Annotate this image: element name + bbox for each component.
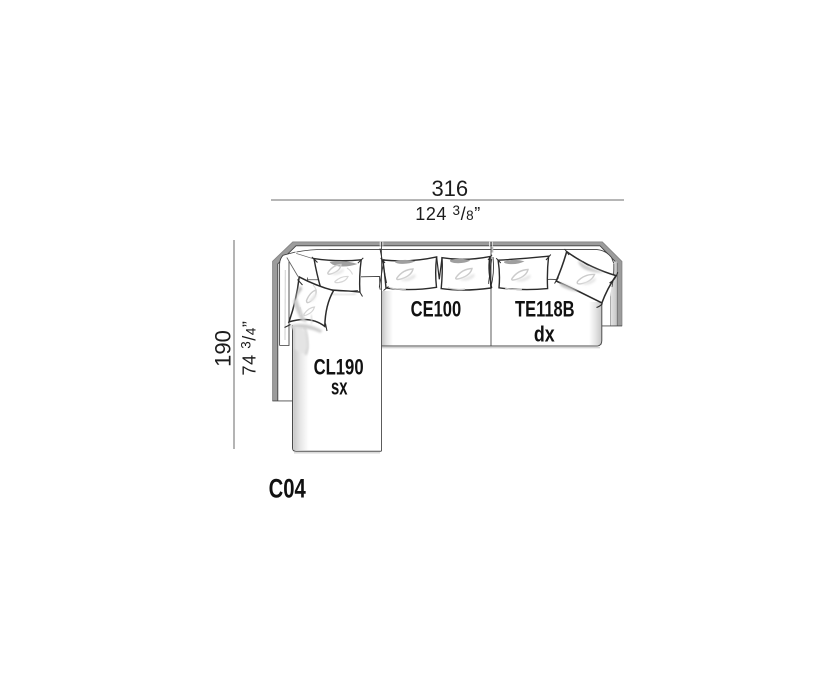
svg-text:sx: sx [331, 374, 348, 399]
svg-text:TE118B: TE118B [515, 297, 575, 322]
svg-text:CE100: CE100 [411, 297, 462, 322]
svg-text:dx: dx [534, 322, 555, 347]
svg-text:C04: C04 [269, 473, 306, 503]
svg-text:190: 190 [210, 330, 235, 367]
svg-text:316: 316 [431, 176, 468, 201]
